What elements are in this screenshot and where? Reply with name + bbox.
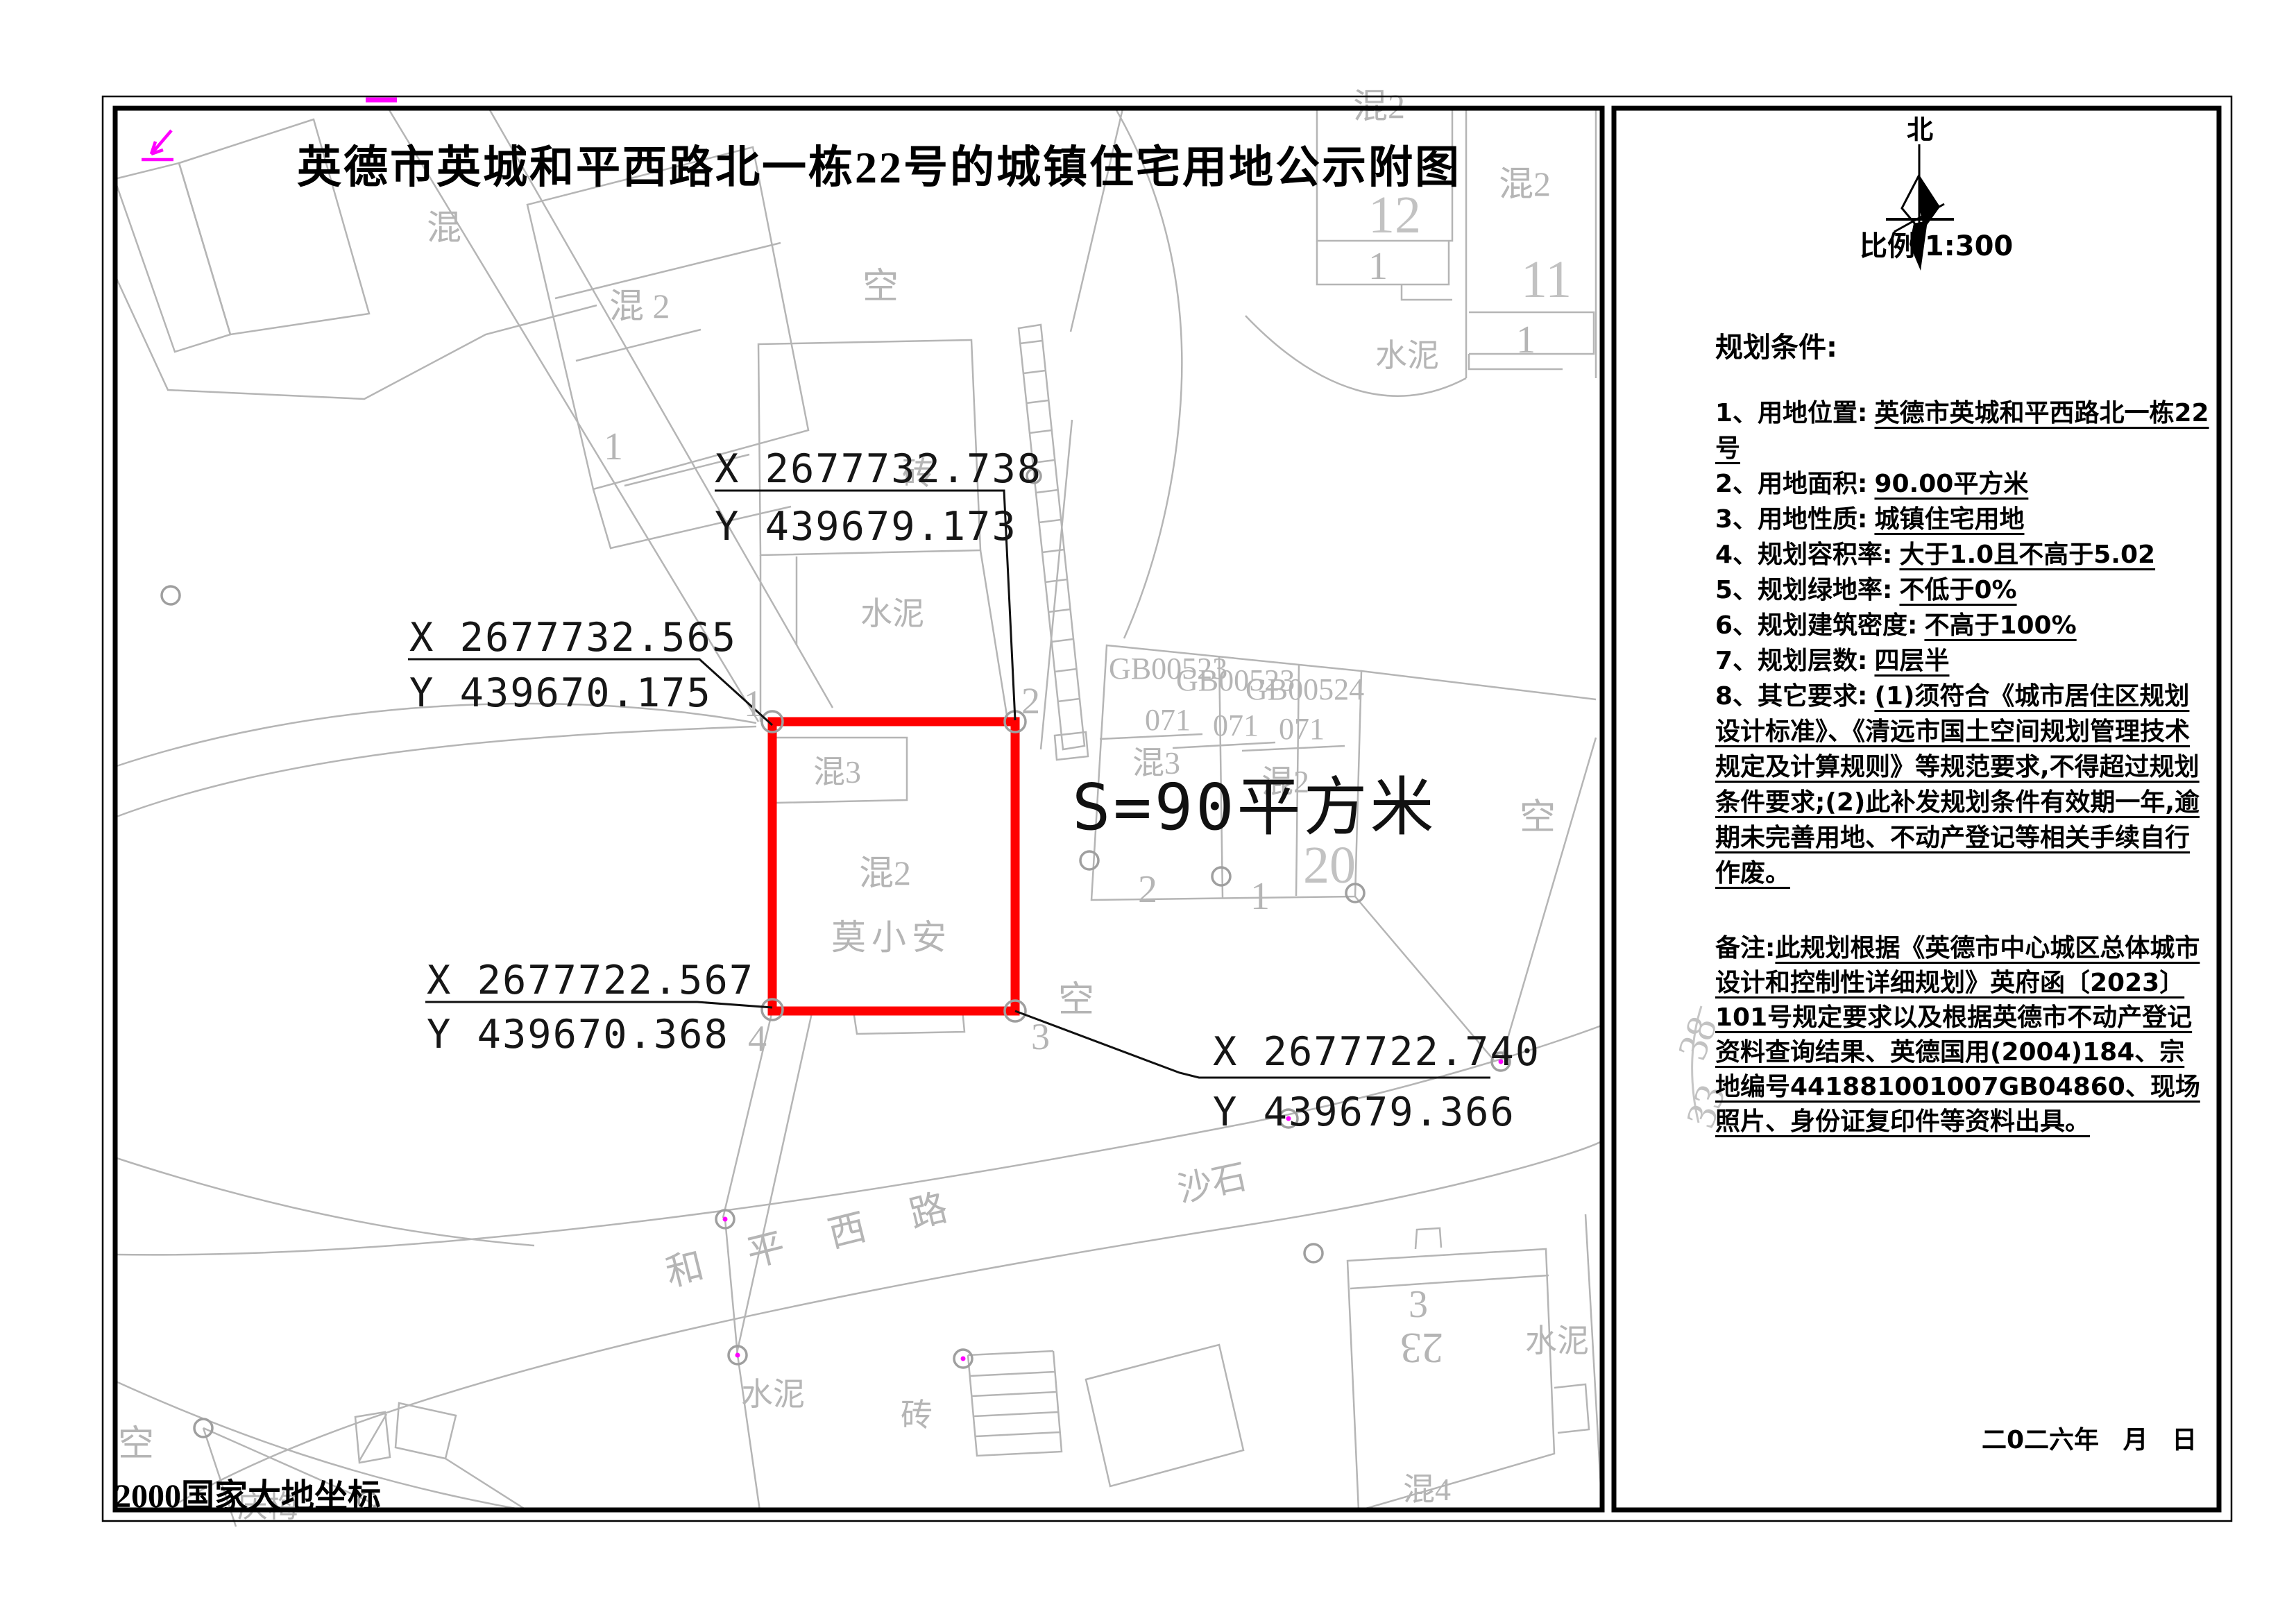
condition-label: 7、规划层数: [1715,647,1867,675]
coord-y-label: Y 439679.366 [1213,1089,1515,1135]
condition-item: 4、规划容积率:大于1.0且不高于5.02 [1715,537,2209,572]
remarks-item: 备注:此规划根据《英德市中心城区总体城市设计和控制性详细规划》英府函〔2023〕… [1715,931,2209,1139]
map-label: 混 [427,208,461,247]
condition-label: 8、其它要求: [1715,682,1867,711]
parcel-area-label: S=90平方米 [1072,770,1437,844]
map-label: 071 [1279,712,1325,746]
map-label: 水泥 [1375,338,1439,373]
map-label: 071 [1213,708,1259,742]
condition-item: 1、用地位置:英德市英城和平西路北一栋22号 [1715,396,2209,466]
condition-value: (1)须符合《城市居住区规划设计标准》、《清远市国土空间规划管理技术规定及计算规… [1715,682,2200,887]
map-label: 071 [1145,703,1191,737]
coord-y-label: Y 439679.173 [715,504,1017,550]
coord-x-label: X 2677732.565 [409,615,737,661]
map-label: 水泥 [741,1377,805,1412]
map-label: 空 [118,1425,154,1464]
coord-y-label: Y 439670.175 [409,670,712,716]
map-label: 23 [1400,1324,1443,1371]
drawing-title: 英德市英城和平西路北一栋22号的城镇住宅用地公示附图 [297,132,1461,196]
map-label: 水泥 [860,596,924,631]
condition-value: 不高于100% [1924,611,2076,640]
parcel-corner-number: 3 [1031,1016,1050,1057]
scale-label: 比例 1:300 [1860,230,2013,262]
map-label: 空 [1520,798,1556,838]
survey-points [162,469,1510,1510]
parcel-owner-label: 莫小安 [831,918,952,957]
map-label: 空 [1058,980,1094,1020]
condition-item: 3、用地性质:城镇住宅用地 [1715,502,2209,537]
planning-conditions-panel: 规划条件: 1、用地位置:英德市英城和平西路北一栋22号 2、用地面积:90.0… [1715,325,2209,1139]
conditions-list: 1、用地位置:英德市英城和平西路北一栋22号 2、用地面积:90.00平方米 3… [1715,396,2209,891]
remarks-label: 备注: [1715,934,1775,962]
map-label: 11 [1521,250,1572,309]
map-label: 混3 [813,754,861,790]
condition-label: 3、用地性质: [1715,505,1867,534]
condition-value: 四层半 [1874,647,1949,675]
condition-item: 5、规划绿地率:不低于0% [1715,572,2209,608]
condition-label: 6、规划建筑密度: [1715,611,1917,640]
parcel-corner-number: 2 [1021,680,1040,722]
condition-item: 8、其它要求:(1)须符合《城市居住区规划设计标准》、《清远市国土空间规划管理技… [1715,679,2209,891]
condition-item: 2、用地面积:90.00平方米 [1715,466,2209,502]
survey-arrow-mark [142,130,173,160]
north-label: 北 [1907,114,1933,145]
road-name-char: 和 [661,1245,708,1294]
condition-label: 2、用地面积: [1715,470,1867,498]
condition-label: 5、规划绿地率: [1715,576,1892,604]
condition-value: 不低于0% [1899,576,2016,604]
coord-x-label: X 2677722.567 [427,958,754,1003]
road-name-char: 西 [824,1206,870,1255]
road-name-char: 路 [905,1187,951,1236]
issue-date: 二0二六年 月 日 [1982,1420,2197,1456]
map-label: 混4 [1403,1472,1451,1507]
condition-value: 90.00平方米 [1874,470,2028,498]
map-label: 1 [1250,875,1270,918]
map-label: GB00524 [1245,672,1364,706]
map-label: 1 [1516,318,1536,362]
condition-label: 4、规划容积率: [1715,541,1892,569]
parcel-use-label: 混2 [859,853,911,892]
remarks-block: 备注:此规划根据《英德市中心城区总体城市设计和控制性详细规划》英府函〔2023〕… [1715,931,2209,1139]
map-label: 空 [862,267,899,307]
map-label: 2 [1138,868,1157,911]
coord-x-label: X 2677722.740 [1213,1029,1540,1075]
map-label: 沙石 [1174,1157,1250,1209]
remarks-value: 此规划根据《英德市中心城区总体城市设计和控制性详细规划》英府函〔2023〕101… [1715,934,2200,1136]
plan-drawing-sheet: 混 混 2 空 混2 12 1 混2 11 1 水泥 砖 水泥 混3 混2 莫小… [0,0,2296,1623]
map-label: 3 [1409,1283,1428,1326]
condition-value: 城镇住宅用地 [1874,505,2024,534]
conditions-title: 规划条件: [1715,325,2209,365]
condition-value: 大于1.0且不高于5.02 [1899,541,2155,569]
map-label: 水泥 [1525,1323,1589,1359]
condition-label: 1、用地位置: [1715,399,1867,427]
parcel-corner-number: 1 [744,683,763,724]
parcel-corner-number: 4 [748,1018,767,1060]
road-name-char: 平 [742,1225,789,1275]
condition-item: 6、规划建筑密度:不高于100% [1715,608,2209,643]
map-label: 混2 [1499,164,1551,203]
coord-x-label: X 2677732.738 [715,446,1042,492]
map-label: 1 [1368,245,1388,288]
map-label: 混 2 [609,287,670,325]
map-label: 20 [1303,836,1356,894]
condition-item: 7、规划层数:四层半 [1715,643,2209,679]
map-label: 砖 [901,1397,933,1433]
coord-y-label: Y 439670.368 [427,1012,729,1057]
map-label: 1 [604,425,623,468]
